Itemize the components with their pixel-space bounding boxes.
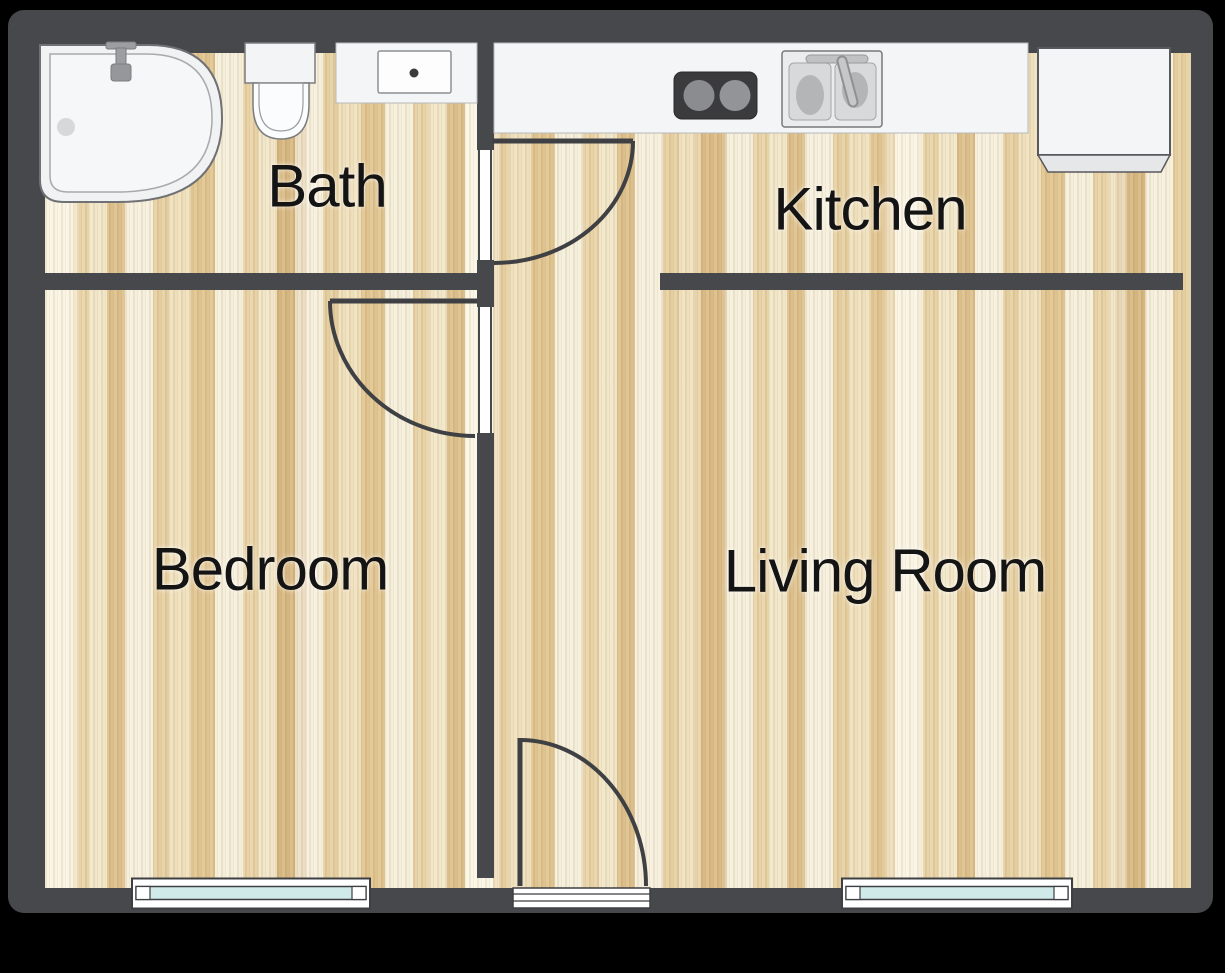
stove-cooktop: [674, 72, 757, 119]
floor-plan-canvas: Bath Kitchen Bedroom Living Room: [0, 0, 1225, 973]
burner-right: [720, 80, 751, 111]
fixtures-layer: [0, 0, 1225, 973]
vanity-sink: [336, 43, 477, 103]
bath-label: Bath: [267, 152, 386, 221]
entry-door: [520, 738, 646, 886]
living-room-window: [842, 879, 1072, 909]
tub-drain: [57, 118, 75, 136]
burner-left: [684, 80, 715, 111]
bedroom-window: [132, 879, 370, 909]
bathtub: [40, 42, 222, 202]
toilet: [245, 43, 315, 139]
refrigerator: [1038, 48, 1170, 172]
bedroom-door: [330, 301, 477, 436]
entry-threshold: [513, 888, 650, 908]
kitchen-double-sink: [782, 51, 882, 127]
bath-door: [492, 141, 633, 263]
living-room-label: Living Room: [724, 537, 1047, 606]
kitchen-counter: [494, 43, 1028, 133]
kitchen-label: Kitchen: [773, 175, 966, 244]
bedroom-label: Bedroom: [152, 535, 388, 604]
vanity-drain: [410, 69, 419, 78]
